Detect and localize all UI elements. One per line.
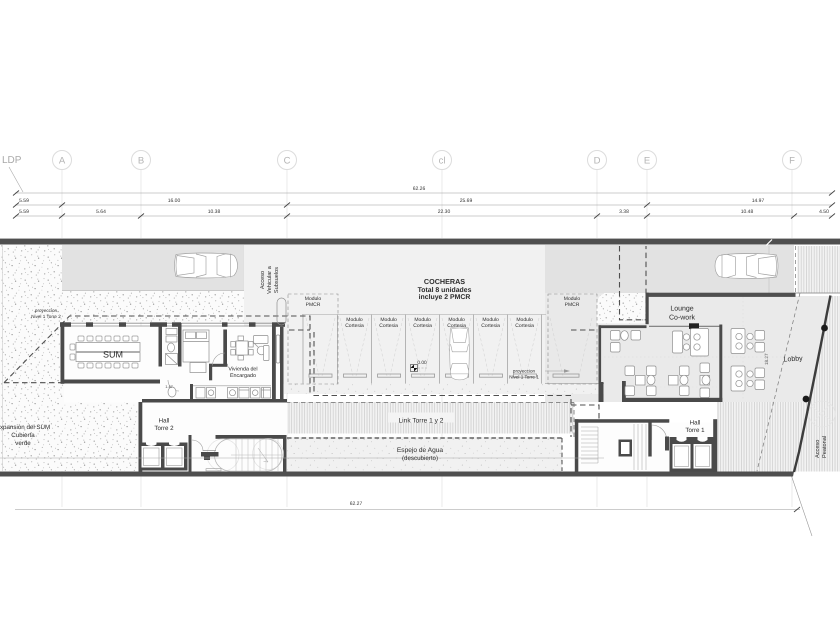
- svg-text:5.59: 5.59: [19, 209, 29, 215]
- svg-text:62.26: 62.26: [413, 186, 426, 192]
- svg-text:Expansion del SUM: Expansion del SUM: [0, 424, 50, 431]
- svg-text:Espejo de Agua: Espejo de Agua: [397, 447, 444, 454]
- svg-text:Cortesia: Cortesia: [481, 323, 500, 329]
- svg-text:5.64: 5.64: [96, 209, 106, 215]
- svg-text:16.00: 16.00: [168, 198, 181, 204]
- svg-text:incluye 2 PMCR: incluye 2 PMCR: [419, 294, 471, 301]
- svg-text:0.00: 0.00: [417, 360, 427, 366]
- svg-text:5.59: 5.59: [19, 198, 29, 204]
- svg-text:proyeccion: proyeccion: [513, 369, 536, 374]
- svg-text:25.69: 25.69: [460, 198, 473, 204]
- svg-text:4.50: 4.50: [819, 209, 829, 215]
- svg-text:B: B: [138, 156, 144, 167]
- svg-text:22.30: 22.30: [438, 209, 451, 215]
- svg-text:Cortesia: Cortesia: [413, 323, 432, 329]
- svg-text:62.27: 62.27: [350, 501, 363, 507]
- svg-text:18.27: 18.27: [764, 353, 769, 365]
- svg-text:Nivel 1 Torre 2: Nivel 1 Torre 2: [31, 314, 61, 319]
- svg-text:PMCR: PMCR: [306, 302, 321, 308]
- svg-text:A: A: [59, 156, 66, 167]
- svg-text:1.47: 1.47: [165, 385, 172, 389]
- svg-text:Vivienda del: Vivienda del: [228, 367, 257, 373]
- svg-text:10.38: 10.38: [208, 209, 221, 215]
- svg-text:Cubierta: Cubierta: [11, 432, 35, 439]
- svg-text:SUM: SUM: [103, 350, 123, 360]
- svg-text:Hall: Hall: [159, 418, 170, 425]
- svg-text:LDP: LDP: [2, 155, 22, 166]
- svg-text:Link Torre 1 y 2: Link Torre 1 y 2: [399, 418, 444, 425]
- svg-text:Total 8 unidades: Total 8 unidades: [418, 287, 472, 294]
- svg-text:Encargado: Encargado: [230, 373, 256, 379]
- svg-text:D: D: [594, 156, 601, 167]
- svg-text:cl: cl: [439, 156, 446, 167]
- svg-text:Cortesia: Cortesia: [515, 323, 534, 329]
- svg-text:C: C: [284, 156, 291, 167]
- svg-text:Lounge: Lounge: [670, 306, 693, 313]
- svg-text:Cortesia: Cortesia: [447, 323, 466, 329]
- svg-text:Torre 1: Torre 1: [685, 427, 705, 434]
- svg-text:COCHERAS: COCHERAS: [424, 277, 465, 286]
- svg-text:Co-work: Co-work: [669, 314, 696, 322]
- svg-text:Hall: Hall: [690, 420, 701, 427]
- svg-text:(descubierto): (descubierto): [402, 455, 438, 462]
- svg-text:10.48: 10.48: [741, 209, 754, 215]
- svg-text:Cortesia: Cortesia: [379, 323, 398, 329]
- svg-text:verde: verde: [15, 440, 31, 447]
- svg-text:E: E: [644, 156, 650, 167]
- svg-text:F: F: [789, 156, 795, 167]
- svg-text:proyeccion: proyeccion: [35, 308, 58, 313]
- svg-text:PMCR: PMCR: [565, 302, 580, 308]
- svg-text:Nivel 1 Torre 1: Nivel 1 Torre 1: [509, 375, 539, 380]
- svg-text:Lobby: Lobby: [783, 354, 803, 363]
- svg-text:3.38: 3.38: [619, 209, 629, 215]
- svg-text:Torre 2: Torre 2: [154, 425, 174, 432]
- svg-text:14.97: 14.97: [752, 198, 765, 204]
- svg-text:Cortesia: Cortesia: [345, 323, 364, 329]
